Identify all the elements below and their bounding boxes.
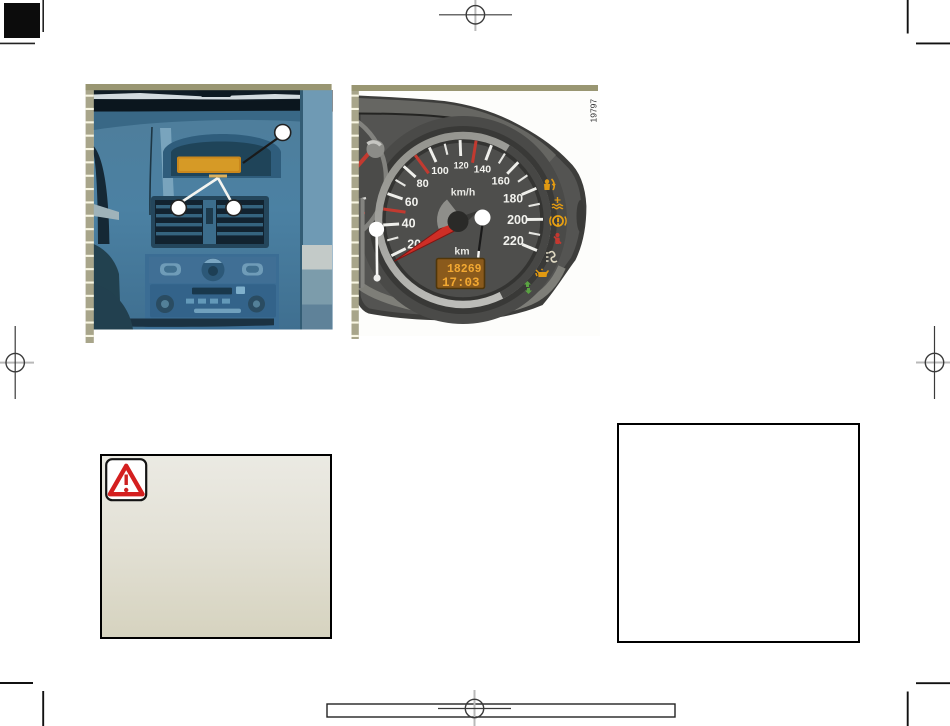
svg-text:160: 160 xyxy=(492,175,510,187)
svg-text:220: 220 xyxy=(503,234,524,248)
svg-text:140: 140 xyxy=(474,164,492,176)
svg-text:km/h: km/h xyxy=(451,187,476,199)
svg-text:km: km xyxy=(454,246,469,258)
svg-text:19797: 19797 xyxy=(589,99,599,123)
svg-text:17:03: 17:03 xyxy=(442,276,480,290)
svg-text:40: 40 xyxy=(402,217,416,231)
svg-text:180: 180 xyxy=(503,192,523,206)
svg-text:200: 200 xyxy=(507,213,528,227)
svg-text:100: 100 xyxy=(431,165,449,177)
svg-text:80: 80 xyxy=(416,178,428,190)
svg-text:60: 60 xyxy=(405,195,419,209)
svg-text:18269: 18269 xyxy=(447,263,482,276)
svg-text:120: 120 xyxy=(454,161,469,171)
